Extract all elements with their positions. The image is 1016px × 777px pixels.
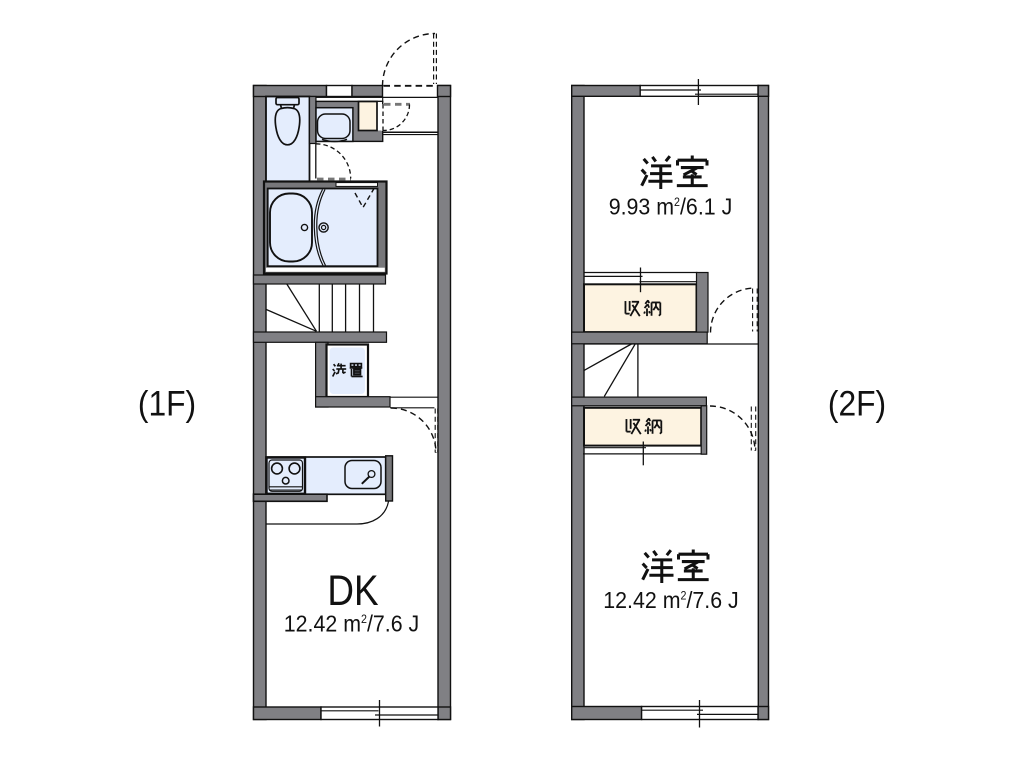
svg-text:12.42 m2/7.6 J: 12.42 m2/7.6 J xyxy=(284,611,419,637)
svg-text:(2F): (2F) xyxy=(828,385,886,424)
svg-text:DK: DK xyxy=(327,567,378,614)
svg-text:9.93 m2/6.1 J: 9.93 m2/6.1 J xyxy=(609,194,733,220)
svg-text:12.42 m2/7.6 J: 12.42 m2/7.6 J xyxy=(603,587,738,613)
svg-text:(1F): (1F) xyxy=(138,385,196,424)
